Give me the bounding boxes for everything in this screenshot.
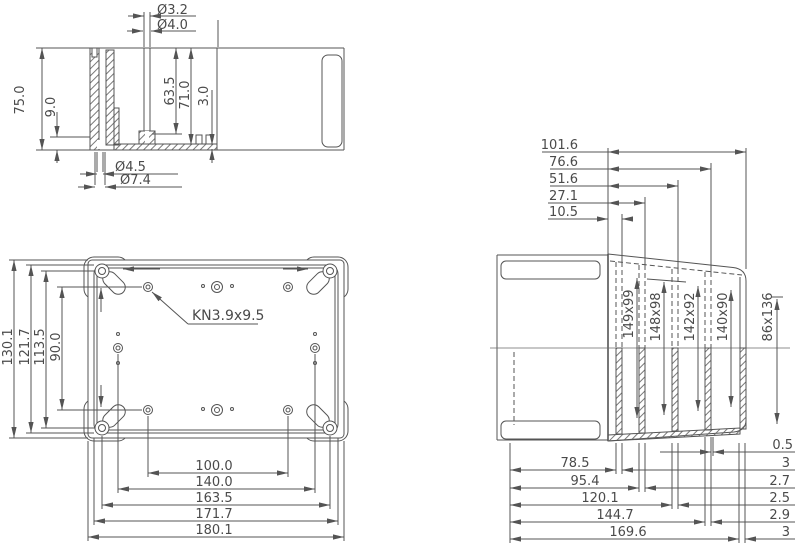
dim-inner-depth: 71.0 [178, 48, 193, 145]
dim-120-1: 120.1 [581, 491, 618, 506]
dim-95-4: 95.4 [571, 474, 600, 489]
dim-dia-4-0: Ø4.0 [157, 18, 188, 33]
dim-t3b: 3 [782, 525, 790, 540]
label-142x92: 142x92 [683, 292, 698, 341]
screw-channel-exit [97, 140, 104, 149]
dim-90-0: 90.0 [49, 333, 64, 362]
base-body-outline [90, 20, 344, 150]
dim-t3a: 3 [782, 456, 790, 471]
label-86x136: 86x136 [761, 292, 776, 341]
dim-51-6: 51.6 [549, 172, 578, 187]
dim-2-5: 2.5 [769, 491, 790, 506]
dim-130-1: 130.1 [1, 328, 16, 365]
dim-100-0: 100.0 [195, 459, 232, 474]
dim-78-5: 78.5 [561, 456, 590, 471]
boss-label: KN3.9x9.5 [192, 308, 264, 324]
dim-boss-hole-diameters: Ø3.2 Ø4.0 [127, 3, 196, 47]
dim-101-6: 101.6 [541, 138, 578, 153]
dim-floor-thickness: 3.0 [197, 86, 212, 163]
dim-171-7: 171.7 [195, 507, 232, 522]
dim-144-7: 144.7 [596, 508, 633, 523]
lid-groove [92, 48, 97, 57]
dim-dia-3-2: Ø3.2 [157, 3, 188, 18]
label-149x99: 149x99 [622, 289, 637, 338]
dim-2-7: 2.7 [769, 474, 790, 489]
dim-121-7: 121.7 [18, 328, 33, 365]
dim-180-1: 180.1 [195, 523, 232, 538]
drawing-canvas: Ø3.2 Ø4.0 75.0 9.0 63.5 71.0 [0, 0, 800, 543]
dim-63-5: 63.5 [163, 77, 178, 106]
dim-3-0: 3.0 [197, 86, 212, 107]
view-cover-section: 149x99 148x98 142x92 140x90 86x136 101.6… [490, 138, 795, 543]
dim-75-0: 75.0 [13, 86, 28, 115]
cover-dims-bottom: 0.5 78.5 3 95.4 2.7 120.1 2.5 144.7 2.9 … [510, 437, 795, 543]
dim-dia-7-4: Ø7.4 [120, 173, 151, 188]
view-section-side: Ø3.2 Ø4.0 75.0 9.0 63.5 71.0 [13, 3, 344, 188]
dim-169-6: 169.6 [609, 525, 646, 540]
cover-dims-top: 101.6 76.6 51.6 27.1 10.5 [541, 138, 746, 272]
dim-0-5: 0.5 [772, 438, 793, 453]
dim-9-0: 9.0 [44, 97, 59, 118]
dim-140-0: 140.0 [195, 475, 232, 490]
dim-corner-screw-hole: Ø4.5 Ø7.4 [78, 152, 182, 188]
cover-section-labels: 149x99 148x98 142x92 140x90 86x136 [622, 278, 783, 424]
dim-27-1: 27.1 [549, 189, 578, 204]
drawing-sheet: Ø3.2 Ø4.0 75.0 9.0 63.5 71.0 [0, 0, 800, 543]
dim-rim-height: 9.0 [44, 97, 90, 163]
dim-71-0: 71.0 [178, 81, 193, 110]
dim-163-5: 163.5 [195, 491, 232, 506]
floor-section [114, 144, 217, 150]
view-plan-bottom: KN3.9x9.5 130.1 121.7 113.5 90.0 [1, 257, 348, 541]
label-148x98: 148x98 [649, 292, 664, 341]
dim-113-5: 113.5 [33, 328, 48, 365]
dim-10-5: 10.5 [549, 205, 578, 220]
dim-2-9: 2.9 [769, 508, 790, 523]
label-140x90: 140x90 [716, 292, 731, 341]
dim-76-6: 76.6 [549, 155, 578, 170]
